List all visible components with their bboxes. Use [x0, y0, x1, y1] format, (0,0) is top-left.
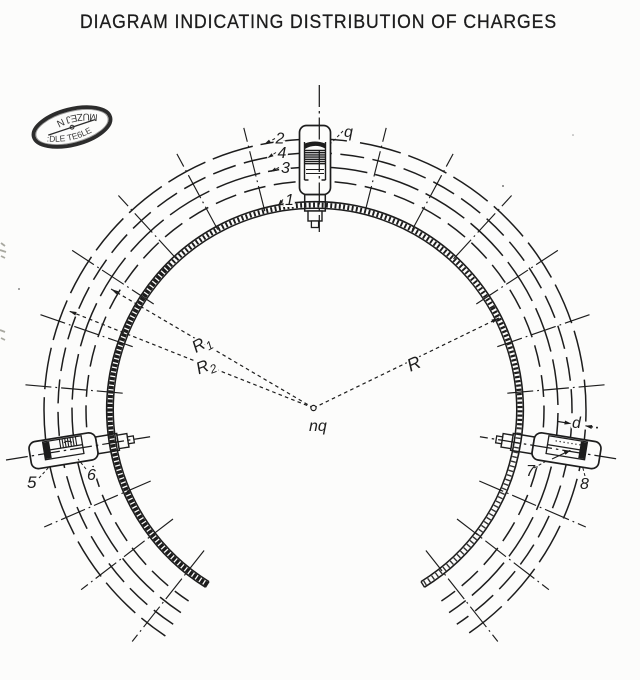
svg-text:5: 5 — [27, 473, 37, 492]
svg-text:8: 8 — [580, 476, 589, 493]
svg-text:7: 7 — [526, 463, 536, 480]
svg-text:d: d — [572, 415, 582, 432]
svg-text:q: q — [344, 124, 353, 141]
svg-text:6: 6 — [87, 467, 96, 484]
svg-text:3: 3 — [281, 160, 290, 177]
svg-text:nq: nq — [309, 418, 327, 435]
svg-text:DIAGRAM INDICATING DISTRIBUTIO: DIAGRAM INDICATING DISTRIBUTION OF CHARG… — [80, 12, 557, 33]
svg-text:1: 1 — [285, 192, 294, 209]
